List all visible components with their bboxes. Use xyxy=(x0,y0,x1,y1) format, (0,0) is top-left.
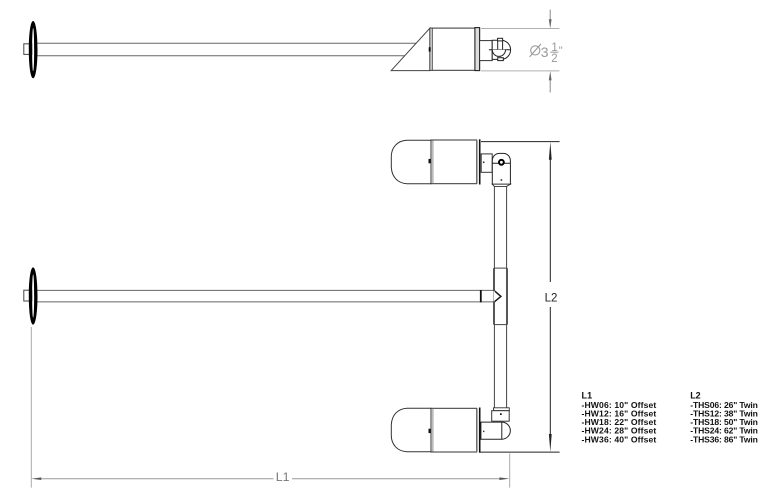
svg-text:L1: L1 xyxy=(276,470,290,484)
svg-text:-HW36: 40" Offset: -HW36: 40" Offset xyxy=(582,434,657,444)
svg-text:L2: L2 xyxy=(545,292,558,304)
svg-text:-THS36: 86" Twin: -THS36: 86" Twin xyxy=(690,434,757,444)
svg-text:": " xyxy=(559,45,563,57)
svg-text:2: 2 xyxy=(551,53,557,65)
svg-text:3: 3 xyxy=(541,44,549,60)
